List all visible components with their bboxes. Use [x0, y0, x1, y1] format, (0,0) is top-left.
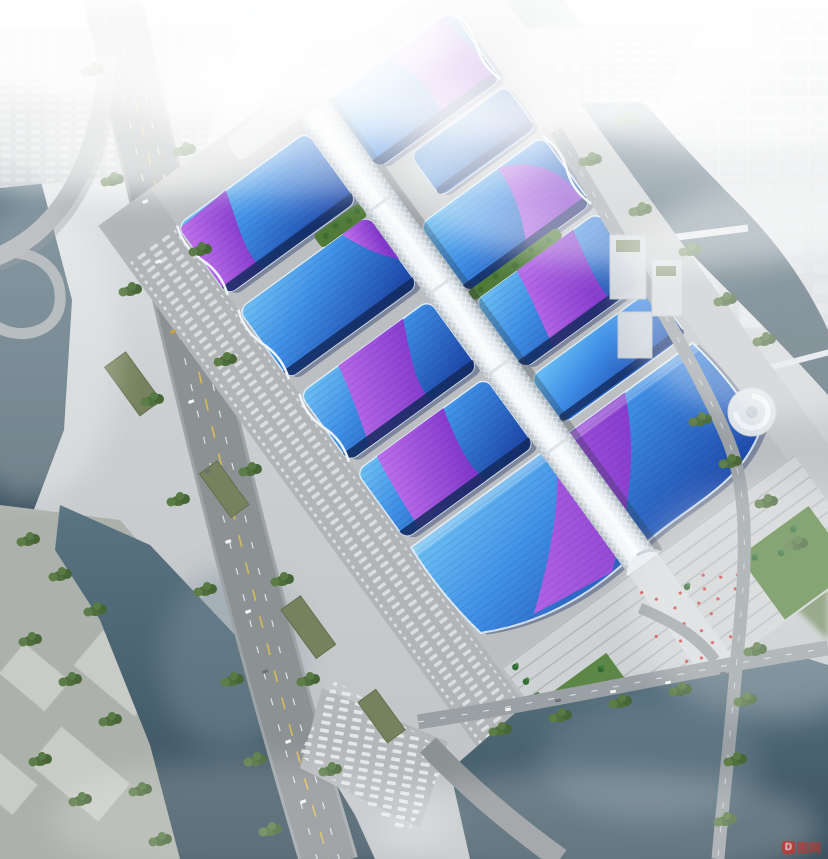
- aerial-render: [0, 0, 828, 859]
- watermark-text: 图网: [797, 839, 821, 856]
- watermark: D 图网: [782, 839, 821, 856]
- watermark-logo: D: [782, 841, 795, 854]
- aerial-render-stage: D 图网: [0, 0, 828, 859]
